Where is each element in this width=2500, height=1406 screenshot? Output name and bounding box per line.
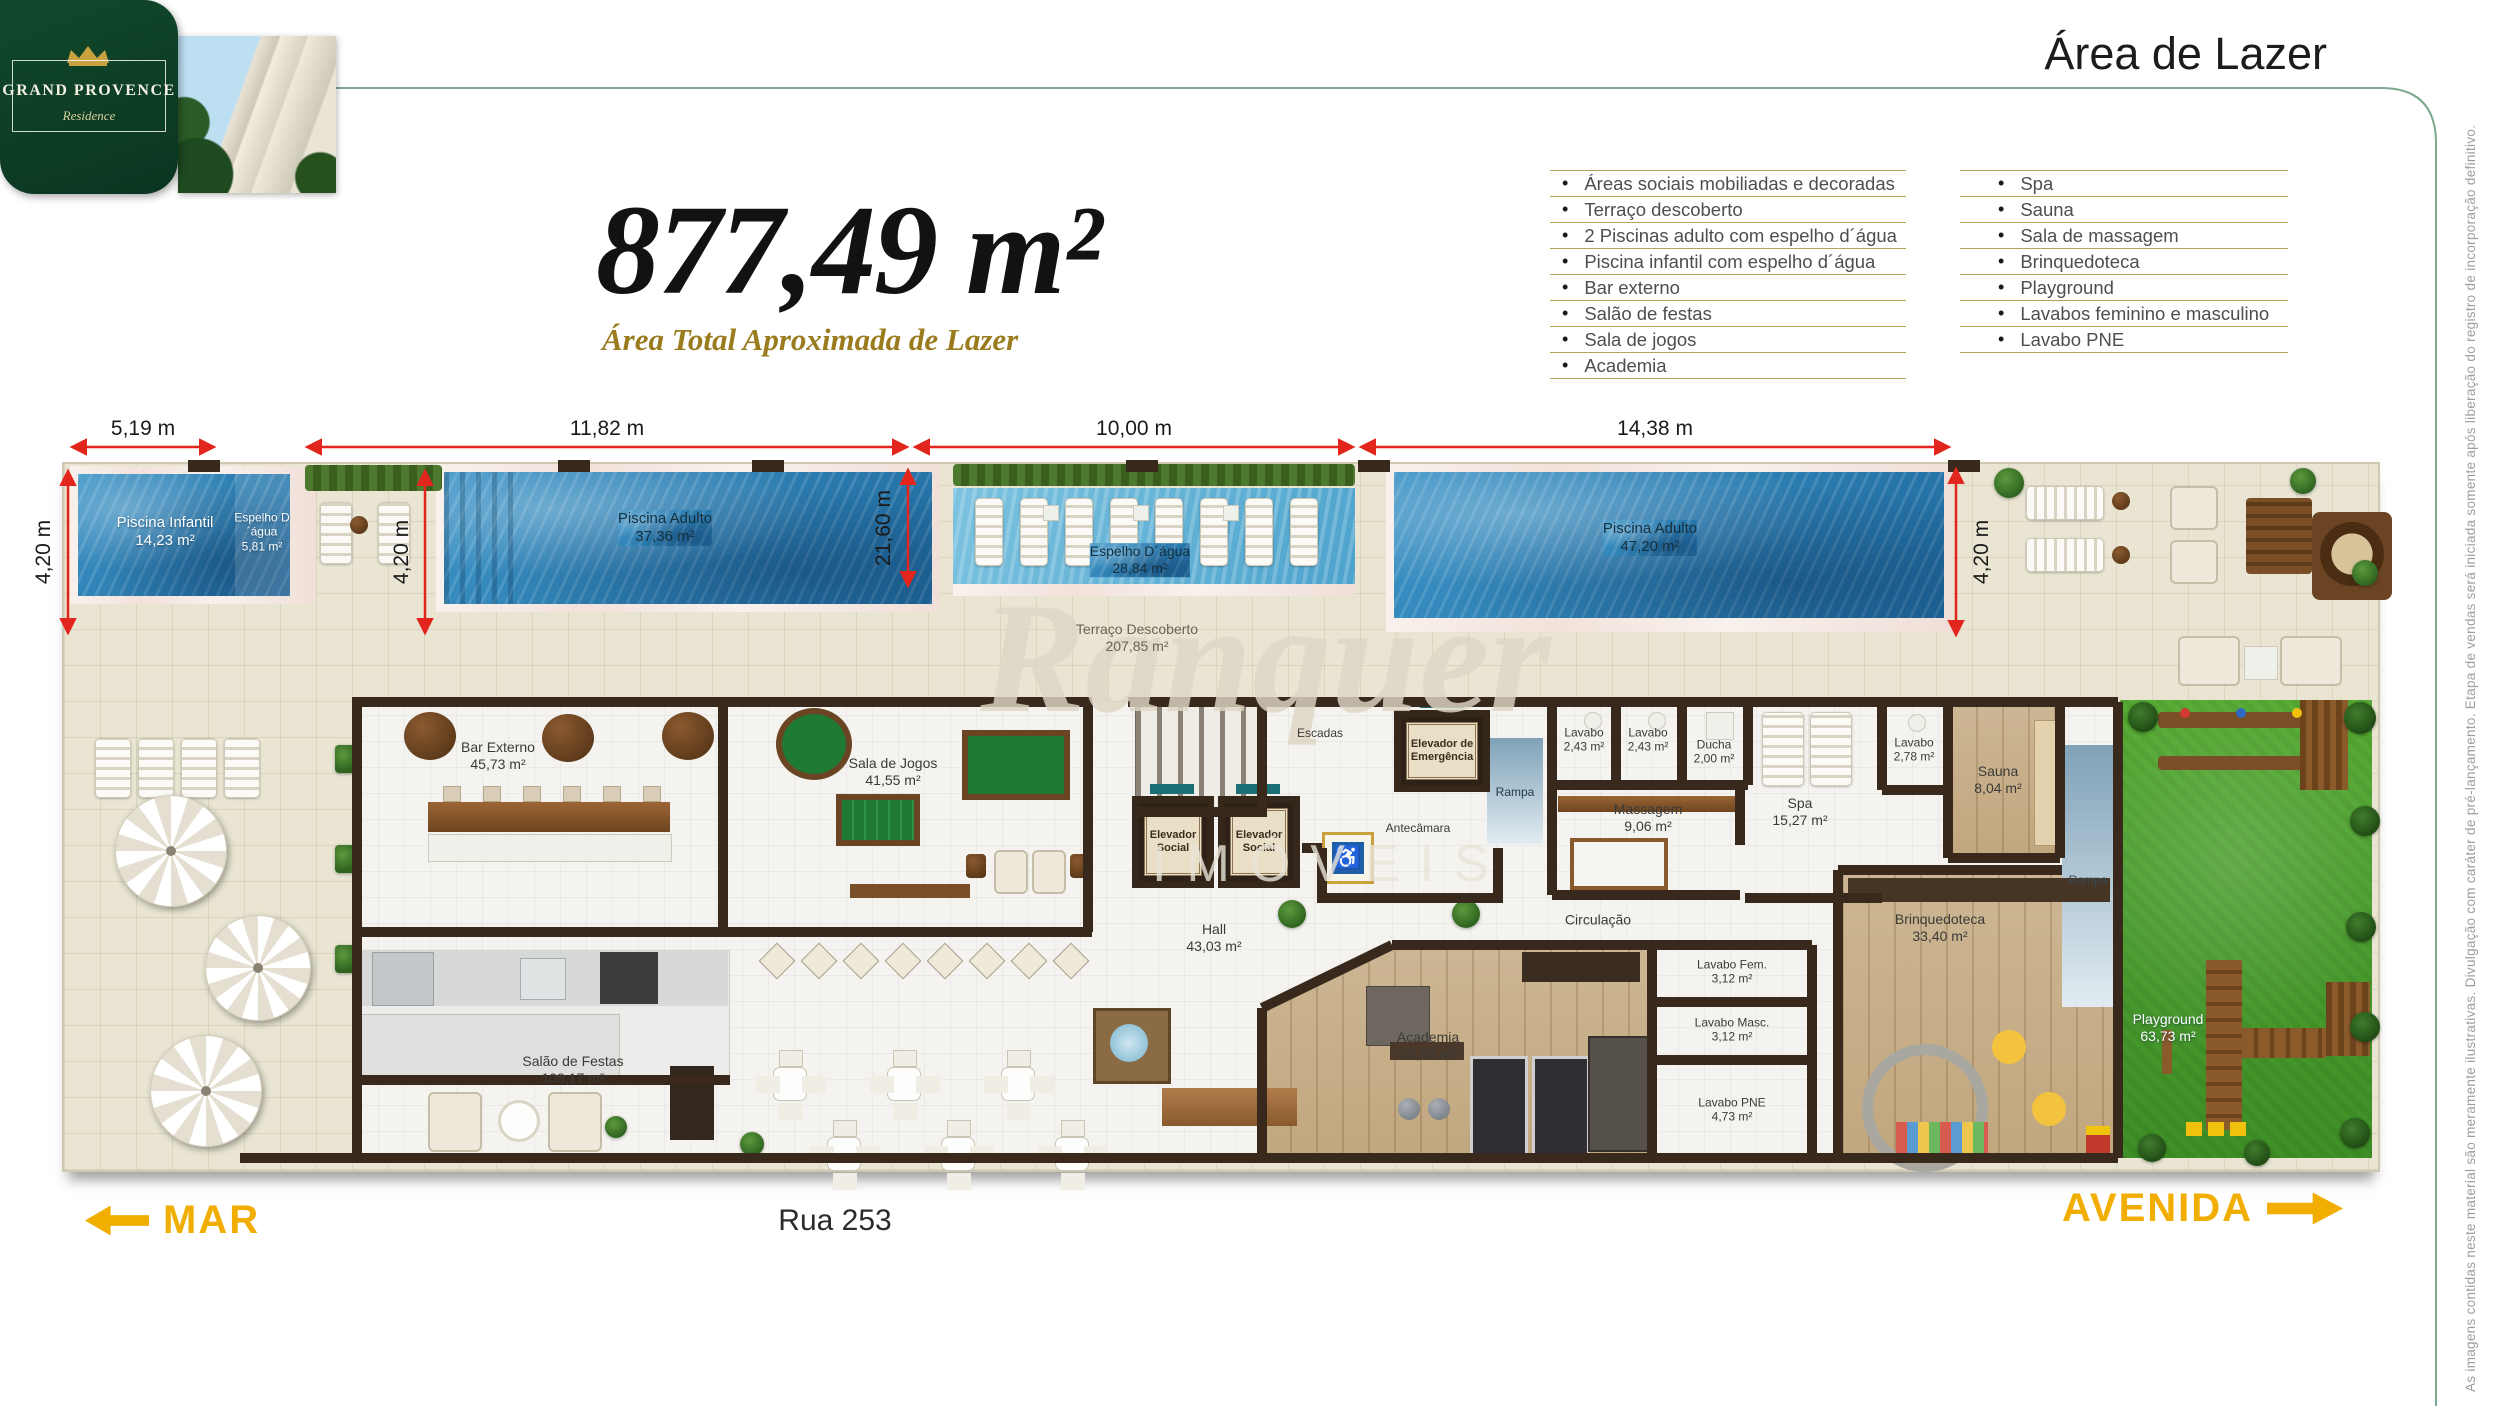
feature-item: • Sala de jogos — [1550, 326, 1906, 352]
feature-item: • Salão de festas — [1550, 300, 1906, 326]
play-knob — [2180, 708, 2190, 718]
bullet-icon: • — [1998, 225, 2004, 246]
coffee-table — [498, 1100, 540, 1142]
side-table — [2112, 546, 2130, 564]
play-step — [2230, 1122, 2246, 1136]
feature-label: Sauna — [2020, 199, 2074, 221]
room-label-spa: Spa15,27 m² — [1772, 795, 1827, 829]
feature-label: Bar externo — [1584, 277, 1680, 299]
deck-sofa — [2280, 636, 2342, 686]
room-label-escadas: Escadas — [1297, 726, 1343, 740]
feature-item: • Spa — [1960, 170, 2288, 196]
deck-chair — [2170, 486, 2218, 530]
feature-list-left: • Áreas sociais mobiliadas e decoradas •… — [1550, 170, 1906, 379]
room-label-piscina-infantil: Piscina Infantil14,23 m² — [117, 514, 214, 550]
in-water-table — [1223, 505, 1239, 521]
feature-label: Áreas sociais mobiliadas e decoradas — [1584, 173, 1895, 195]
wall — [188, 460, 220, 472]
bar-stool — [523, 786, 541, 802]
feature-label: Terraço descoberto — [1584, 199, 1742, 221]
room-label-rampa-direita: Rampa — [2069, 873, 2108, 887]
massage-table — [1570, 838, 1668, 890]
feature-item: • Lavabo PNE — [1960, 326, 2288, 353]
fridge — [372, 952, 434, 1006]
bar-stool — [443, 786, 461, 802]
total-area-label: Área Total Aproximada de Lazer — [602, 322, 1156, 358]
bar-table — [662, 712, 714, 760]
bullet-icon: • — [1998, 303, 2004, 324]
mar-label: MAR — [163, 1198, 260, 1243]
room-label-piscina-adulto-2: Piscina Adulto47,20 m² — [1603, 520, 1697, 556]
bullet-icon: • — [1562, 199, 1568, 220]
treadmill — [1532, 1056, 1590, 1158]
room-label-lavabo-c: Lavabo2,78 m² — [1894, 736, 1935, 765]
bar-stool — [643, 786, 661, 802]
bush — [2128, 702, 2158, 732]
bullet-icon: • — [1562, 329, 1568, 350]
disclaimer-text: As imagens contidas neste material são m… — [2463, 92, 2478, 1392]
room-label-sauna: Sauna8,04 m² — [1974, 763, 2021, 797]
plant — [1452, 900, 1480, 928]
in-water-lounger — [1245, 498, 1273, 566]
room-label-brinquedoteca: Brinquedoteca33,40 m² — [1895, 911, 1985, 945]
sauna-bench — [2034, 720, 2060, 846]
armchair — [548, 1092, 602, 1152]
feature-label: Playground — [2020, 277, 2114, 299]
wall — [752, 460, 784, 472]
watermark-name: Ranquer — [980, 580, 1551, 738]
elevator-cap — [1236, 784, 1280, 794]
hedge — [305, 465, 442, 491]
treadmill — [1470, 1056, 1528, 1158]
umbrella — [205, 915, 311, 1021]
sun-lounger — [224, 738, 260, 798]
bullet-icon: • — [1562, 225, 1568, 246]
plant — [740, 1132, 764, 1156]
wood-table — [2246, 498, 2312, 574]
bullet-icon: • — [1562, 173, 1568, 194]
room-label-lavabo-pne: Lavabo PNE4,73 m² — [1698, 1096, 1765, 1125]
bar-stool — [603, 786, 621, 802]
exercise-ball — [1398, 1098, 1420, 1120]
bush — [2350, 806, 2380, 836]
deck-chair — [2170, 540, 2218, 584]
bar-stool — [563, 786, 581, 802]
sun-lounger — [320, 502, 352, 564]
wall — [1126, 460, 1158, 472]
tree — [1994, 468, 2024, 498]
dim-label-2: 11,82 m — [570, 417, 644, 441]
room-label-hall: Hall43,03 m² — [1186, 921, 1241, 955]
room-label-lavabo-b: Lavabo2,43 m² — [1628, 726, 1669, 755]
wall — [1948, 460, 1980, 472]
arrow-right-icon — [2267, 1193, 2343, 1225]
feature-label: Academia — [1584, 355, 1666, 377]
room-label-academia: Academia36,68 m² — [1397, 1029, 1459, 1063]
feature-item: • Academia — [1550, 352, 1906, 379]
dim-label-4: 14,38 m — [1617, 417, 1693, 441]
room-label-sala-jogos: Sala de Jogos41,55 m² — [849, 755, 938, 789]
brand-name: GRAND PROVENCE — [0, 82, 178, 100]
sink — [520, 958, 566, 1000]
feature-label: Lavabos feminino e masculino — [2020, 303, 2269, 325]
side-table — [350, 516, 368, 534]
feature-item: • Áreas sociais mobiliadas e decoradas — [1550, 170, 1906, 196]
bush — [2340, 1118, 2370, 1148]
room-label-lavabo-a: Lavabo2,43 m² — [1564, 726, 1605, 755]
feature-label: Piscina infantil com espelho d´água — [1584, 251, 1875, 273]
dining-set — [872, 1052, 936, 1116]
fountain-water — [1110, 1024, 1148, 1062]
street-label: Rua 253 — [760, 1204, 910, 1238]
stove — [600, 952, 658, 1004]
feature-item: • 2 Piscinas adulto com espelho d´água — [1550, 222, 1906, 248]
sun-lounger — [95, 738, 131, 798]
dim-label-v4: 4,20 m — [1970, 520, 1994, 584]
feature-item: • Brinquedoteca — [1960, 248, 2288, 274]
room-label-espelho-1: Espelho D´água5,81 m² — [227, 510, 297, 553]
feature-item: • Sauna — [1960, 196, 2288, 222]
feature-label: Sala de massagem — [2020, 225, 2178, 247]
sink — [1908, 714, 1926, 732]
feature-item: • Piscina infantil com espelho d´água — [1550, 248, 1906, 274]
room-label-antecamara: Antecâmara — [1386, 821, 1451, 835]
kids-table — [2032, 1092, 2066, 1126]
building-photo — [178, 36, 336, 193]
bush — [2350, 1012, 2380, 1042]
plant — [605, 1116, 627, 1138]
room-label-piscina-adulto-1: Piscina Adulto37,36 m² — [618, 510, 712, 546]
side-table — [1070, 854, 1090, 878]
side-table — [966, 854, 986, 878]
planter — [335, 745, 355, 773]
dim-label-v3: 21,60 m — [872, 490, 896, 566]
sun-lounger — [181, 738, 217, 798]
feature-label: Brinquedoteca — [2020, 251, 2139, 273]
elevator-cap — [1150, 784, 1194, 794]
play-knob — [2292, 708, 2302, 718]
umbrella — [150, 1035, 262, 1147]
bush — [2138, 1134, 2166, 1162]
bar-table — [404, 712, 456, 760]
total-area-block: 877,49 m² Área Total Aproximada de Lazer — [596, 186, 1156, 358]
bar-table — [542, 714, 594, 762]
in-water-table — [1043, 505, 1059, 521]
in-water-lounger — [1065, 498, 1093, 566]
bush — [2344, 702, 2376, 734]
total-area-value: 877,49 m² — [596, 186, 1156, 314]
brand-subname: Residence — [0, 108, 178, 124]
arrow-left-icon — [85, 1206, 149, 1236]
barbell-rack — [1522, 952, 1640, 982]
play-knob — [2236, 708, 2246, 718]
tree — [2290, 468, 2316, 494]
planter — [335, 945, 355, 973]
slat-deck — [2300, 700, 2348, 790]
poker-table — [776, 708, 852, 780]
dining-set — [812, 1122, 876, 1186]
bullet-icon: • — [1562, 251, 1568, 272]
feature-list-right: • Spa • Sauna • Sala de massagem • Brinq… — [1960, 170, 2288, 353]
room-label-espelho-2: Espelho D´água28,84 m² — [1090, 543, 1190, 577]
spa-lounger — [1762, 712, 1804, 786]
play-step — [2208, 1122, 2224, 1136]
tv-console — [850, 884, 970, 898]
bush — [2346, 912, 2376, 942]
in-water-table — [1133, 505, 1149, 521]
armchair — [994, 850, 1028, 894]
foosball-table — [836, 794, 920, 846]
buffet-cabinet — [670, 1066, 714, 1140]
armchair — [428, 1092, 482, 1152]
bullet-icon: • — [1998, 251, 2004, 272]
side-table — [2112, 492, 2130, 510]
bullet-icon: • — [1562, 303, 1568, 324]
tree — [2352, 560, 2378, 586]
feature-label: Spa — [2020, 173, 2053, 195]
room-label-circulacao: Circulação — [1565, 912, 1631, 929]
play-step — [2186, 1122, 2202, 1136]
avenida-label: AVENIDA — [2062, 1186, 2253, 1231]
plant — [1278, 900, 1306, 928]
feature-label: Lavabo PNE — [2020, 329, 2124, 351]
wall — [558, 460, 590, 472]
planter — [335, 845, 355, 873]
in-water-lounger — [975, 498, 1003, 566]
exercise-ball — [1428, 1098, 1450, 1120]
bullet-icon: • — [1998, 277, 2004, 298]
room-label-massagem: Massagem9,06 m² — [1614, 801, 1682, 835]
wall — [1358, 460, 1390, 472]
brand-logo-card: GRAND PROVENCE Residence — [0, 0, 178, 194]
shower — [1706, 712, 1734, 740]
deck-sofa — [2178, 636, 2240, 686]
page-canvas: GRAND PROVENCE Residence Área de Lazer 8… — [0, 0, 2500, 1406]
hall-desk — [1162, 1088, 1297, 1126]
play-walkway — [2242, 1028, 2326, 1058]
dim-label-1: 5,19 m — [111, 417, 175, 441]
deck-table — [2244, 646, 2278, 680]
room-label-salao-festas: Salão de Festas108,17 m² — [522, 1053, 623, 1087]
armchair — [1032, 850, 1066, 894]
page-title: Área de Lazer — [2044, 28, 2327, 80]
pool-steps — [444, 472, 514, 604]
bullet-icon: • — [1562, 277, 1568, 298]
dim-label-3: 10,00 m — [1096, 417, 1172, 441]
play-rug — [1896, 1122, 1988, 1156]
room-label-ducha: Ducha2,00 m² — [1694, 738, 1735, 767]
toy — [2086, 1126, 2110, 1156]
feature-item: • Lavabos feminino e masculino — [1960, 300, 2288, 326]
sun-lounger — [2026, 486, 2104, 520]
dim-label-v2: 4,20 m — [390, 520, 414, 584]
bullet-icon: • — [1998, 199, 2004, 220]
room-label-lavabo-masc: Lavabo Masc.3,12 m² — [1695, 1016, 1770, 1045]
bar-counter — [428, 802, 670, 832]
bar-stool — [483, 786, 501, 802]
feature-item: • Playground — [1960, 274, 2288, 300]
mar-direction: MAR — [85, 1198, 260, 1243]
feature-item: • Sala de massagem — [1960, 222, 2288, 248]
room-label-bar-externo: Bar Externo45,73 m² — [461, 739, 535, 773]
feature-label: Sala de jogos — [1584, 329, 1696, 351]
kids-table — [1992, 1030, 2026, 1064]
feature-item: • Bar externo — [1550, 274, 1906, 300]
umbrella — [115, 795, 227, 907]
dining-set — [758, 1052, 822, 1116]
room-label-rampa-centro: Rampa — [1496, 785, 1535, 799]
watermark-sub: IMÓVEIS — [1152, 834, 1509, 894]
bush — [2244, 1140, 2270, 1166]
dining-set — [986, 1052, 1050, 1116]
dining-set — [926, 1122, 990, 1186]
multi-gym — [1588, 1036, 1650, 1152]
room-label-terraco: Terraço Descoberto207,85 m² — [1076, 621, 1198, 655]
dim-label-v1: 4,20 m — [32, 520, 56, 584]
bullet-icon: • — [1562, 355, 1568, 376]
feature-label: 2 Piscinas adulto com espelho d´água — [1584, 225, 1897, 247]
avenida-direction: AVENIDA — [2062, 1186, 2343, 1231]
bar-counter-front — [428, 834, 672, 862]
in-water-lounger — [1290, 498, 1318, 566]
sun-lounger — [138, 738, 174, 798]
dining-set — [1040, 1122, 1104, 1186]
spa-lounger — [1810, 712, 1852, 786]
room-label-playground: Playground63,73 m² — [2133, 1011, 2204, 1045]
bullet-icon: • — [1998, 329, 2004, 350]
feature-item: • Terraço descoberto — [1550, 196, 1906, 222]
room-label-lavabo-fem: Lavabo Fem.3,12 m² — [1697, 958, 1767, 987]
plank-bridge — [2206, 960, 2242, 1130]
sun-lounger — [2026, 538, 2104, 572]
bullet-icon: • — [1998, 173, 2004, 194]
feature-label: Salão de festas — [1584, 303, 1712, 325]
